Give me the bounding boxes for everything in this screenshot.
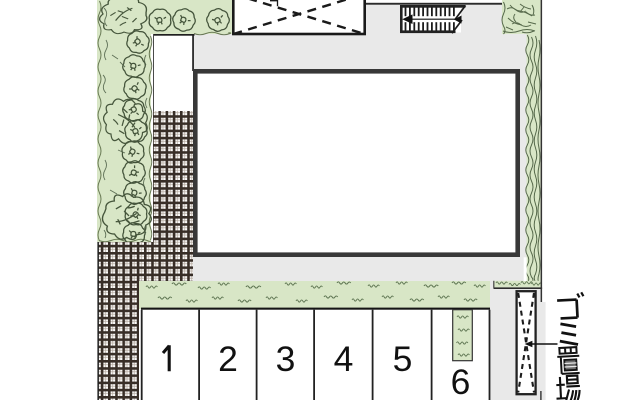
- svg-text:2: 2: [218, 339, 238, 379]
- svg-text:6: 6: [451, 362, 471, 400]
- svg-text:4: 4: [334, 339, 354, 379]
- svg-text:3: 3: [276, 339, 296, 379]
- svg-text:5: 5: [393, 339, 413, 379]
